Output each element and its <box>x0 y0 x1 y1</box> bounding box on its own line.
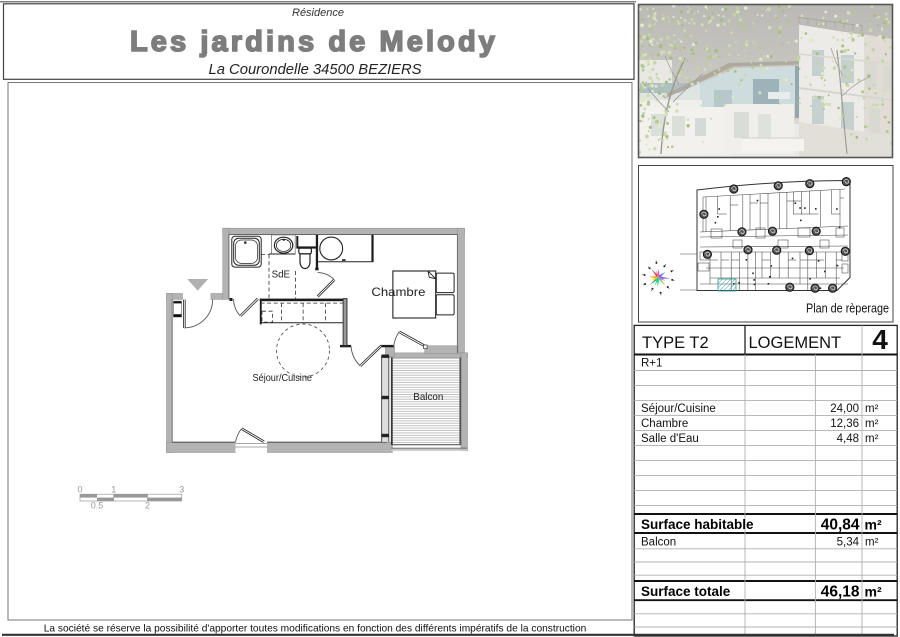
svg-text:40,84: 40,84 <box>821 516 860 533</box>
svg-text:5,34: 5,34 <box>837 536 860 548</box>
svg-text:R+1: R+1 <box>641 358 662 370</box>
svg-text:Plan de rèperage: Plan de rèperage <box>806 301 889 316</box>
svg-text:4,48: 4,48 <box>837 433 859 445</box>
svg-text:La société se réserve la possi: La société se réserve la possibilité d'a… <box>44 623 587 634</box>
svg-text:m²: m² <box>865 403 879 415</box>
svg-text:12,36: 12,36 <box>830 418 859 430</box>
svg-text:Surface totale: Surface totale <box>641 584 731 599</box>
svg-text:Balcon: Balcon <box>413 391 443 403</box>
svg-text:0.5: 0.5 <box>91 501 104 511</box>
svg-text:Surface habitable: Surface habitable <box>641 517 754 532</box>
svg-text:Chambre: Chambre <box>371 285 425 299</box>
svg-text:m²: m² <box>865 418 879 430</box>
svg-text:Chambre: Chambre <box>641 418 688 430</box>
svg-text:SdE: SdE <box>272 268 291 280</box>
svg-text:m²: m² <box>865 583 882 599</box>
svg-text:Salle d'Eau: Salle d'Eau <box>641 433 699 445</box>
svg-text:1: 1 <box>111 485 116 495</box>
svg-text:Les jardins de Melody: Les jardins de Melody <box>130 26 498 58</box>
svg-text:4: 4 <box>872 324 888 355</box>
svg-text:TYPE T2: TYPE T2 <box>642 334 709 352</box>
svg-text:LOGEMENT: LOGEMENT <box>749 334 842 352</box>
svg-text:Résidence: Résidence <box>292 7 344 19</box>
svg-text:Balcon: Balcon <box>641 536 676 548</box>
svg-text:2: 2 <box>145 501 150 511</box>
svg-text:m²: m² <box>865 536 879 548</box>
svg-text:3: 3 <box>179 485 184 495</box>
svg-text:Séjour/Cuisine: Séjour/Cuisine <box>641 403 716 415</box>
svg-text:0: 0 <box>77 485 82 495</box>
svg-text:m²: m² <box>865 516 882 532</box>
svg-text:Séjour/Cuisine: Séjour/Cuisine <box>253 372 313 384</box>
svg-text:46,18: 46,18 <box>821 583 860 600</box>
svg-text:m²: m² <box>865 433 879 445</box>
svg-text:La Courondelle 34500 BEZIERS: La Courondelle 34500 BEZIERS <box>208 62 421 78</box>
svg-text:24,00: 24,00 <box>830 403 859 415</box>
